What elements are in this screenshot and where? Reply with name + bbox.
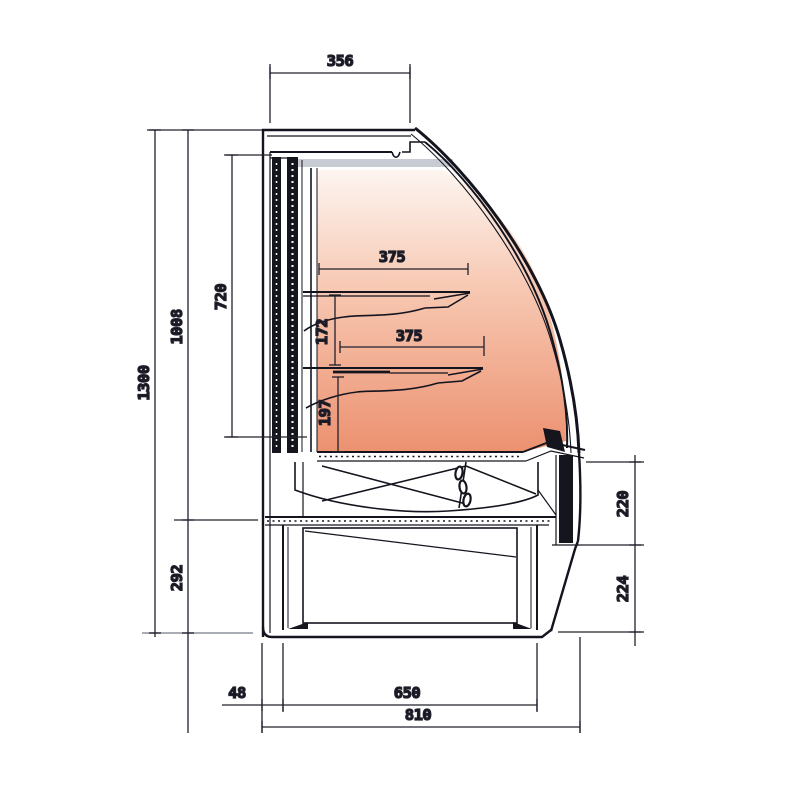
dim-label-720: 720	[212, 284, 230, 311]
dim-label-172: 172	[313, 319, 331, 346]
rear-duct-bar-2	[287, 157, 298, 453]
interior-top-trim	[295, 159, 453, 167]
dim-label-810: 810	[405, 706, 432, 724]
dimension-overall-height: 1300	[135, 130, 262, 637]
dimension-top-depth: 356	[270, 52, 410, 123]
canopy-latch	[392, 142, 425, 157]
front-bumper	[551, 453, 580, 631]
base-cabinet	[263, 525, 551, 637]
display-compartment-fill	[317, 170, 566, 452]
well-bracing	[322, 462, 536, 508]
drawing-canvas: 356 1300 1008 292 720 375 172	[0, 0, 800, 800]
dimension-bottom: 48 650 810	[222, 637, 580, 733]
dim-label-375-upper: 375	[379, 248, 406, 266]
base-front-slope	[551, 541, 578, 631]
evaporator-well	[295, 462, 556, 517]
dim-label-650: 650	[394, 684, 421, 702]
dim-label-48: 48	[228, 684, 246, 702]
dim-label-375-lower: 375	[396, 327, 423, 345]
base-door-brace	[305, 531, 516, 557]
dim-label-1300: 1300	[135, 365, 153, 400]
dim-label-220: 220	[614, 491, 632, 518]
dim-label-292: 292	[168, 565, 186, 592]
dim-label-224: 224	[614, 576, 632, 603]
base-door-panel	[303, 528, 517, 623]
section-drawing: 356 1300 1008 292 720 375 172	[0, 0, 800, 800]
dim-label-356: 356	[327, 52, 354, 70]
rear-duct-bar-1	[272, 157, 281, 453]
counter-band	[265, 517, 556, 525]
dimension-body-height: 1008 292	[168, 130, 258, 733]
dim-label-1008: 1008	[168, 309, 186, 344]
cabinet-outline	[263, 128, 579, 637]
dim-label-197: 197	[316, 400, 334, 427]
